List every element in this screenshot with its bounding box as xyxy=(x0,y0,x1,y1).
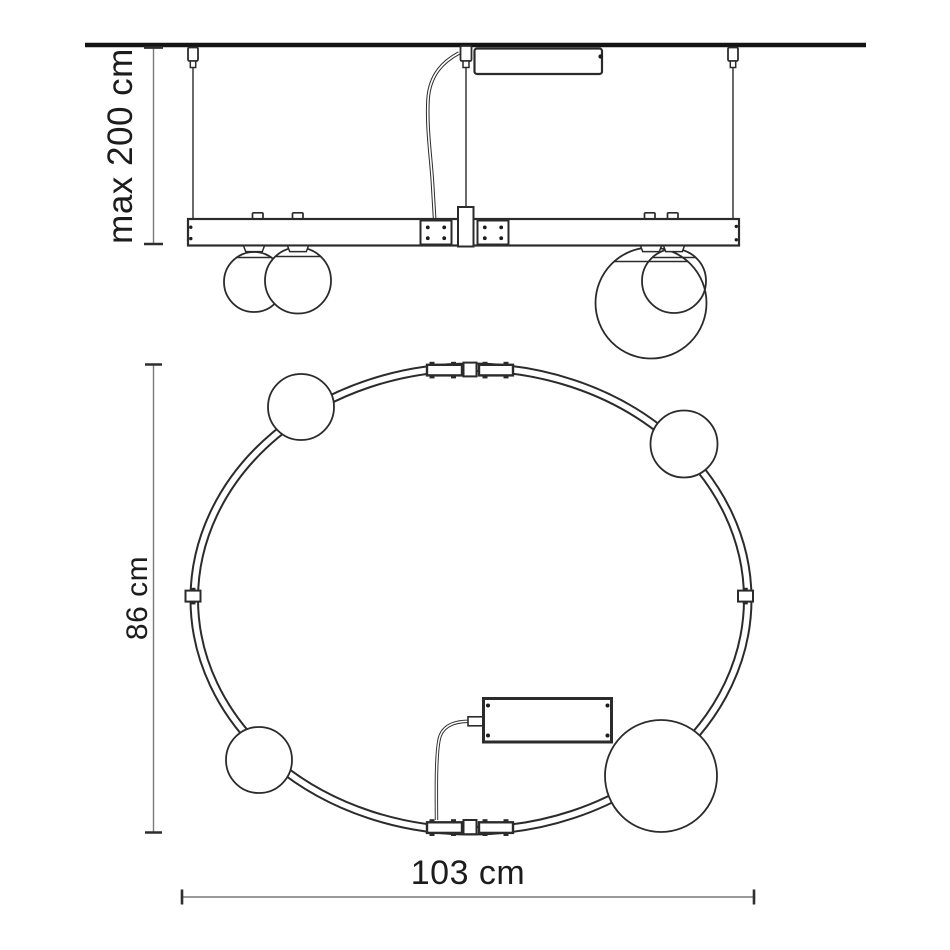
ring-connector-bottom xyxy=(427,819,513,836)
screw-dot xyxy=(606,704,610,708)
screw-dot xyxy=(598,54,602,58)
hanger-block xyxy=(464,820,477,834)
connector-clamp xyxy=(479,365,513,376)
bolt-dot xyxy=(483,226,487,230)
connector-body xyxy=(458,207,474,247)
dimension-label-depth: 86 cm xyxy=(121,556,154,640)
dimension-ring-depth: 86 cm xyxy=(121,365,162,833)
side-view: max 200 cm xyxy=(85,45,866,359)
sphere-top-left xyxy=(268,374,334,440)
hanger-block xyxy=(464,363,477,377)
screw-dot xyxy=(735,238,738,241)
sphere-bottom-left xyxy=(226,727,292,793)
bolt-dot xyxy=(426,226,430,230)
connector-clamp xyxy=(427,822,462,833)
dimension-label-width: 103 cm xyxy=(411,854,526,892)
cable-gripper-right xyxy=(728,48,738,68)
dimension-ring-width: 103 cm xyxy=(182,854,754,905)
cable-gripper-center xyxy=(461,46,472,68)
sphere-bottom-right-large xyxy=(605,720,717,832)
screw-dot xyxy=(735,225,738,228)
bolt-dot xyxy=(499,226,503,230)
cable-gripper-left xyxy=(188,48,198,68)
ring-connector-top xyxy=(427,362,513,379)
glass-spheres-left xyxy=(224,246,331,314)
screw-dot xyxy=(189,226,192,229)
screw-dot xyxy=(486,704,490,708)
lamp-dimension-drawing: max 200 cm xyxy=(0,0,950,950)
cord-stub xyxy=(468,717,484,726)
ring-connector-left xyxy=(186,588,201,605)
sphere-cap xyxy=(244,246,265,252)
glass-sphere xyxy=(265,248,331,314)
bolt-dot xyxy=(483,236,487,240)
connector-clamp xyxy=(427,365,462,376)
bolt-plate-left xyxy=(421,221,452,245)
drawing-svg: max 200 cm xyxy=(0,0,950,950)
driver-box-side xyxy=(475,49,603,75)
sphere-top-right xyxy=(651,411,718,478)
dimension-label-suspension: max 200 cm xyxy=(101,48,140,244)
power-cord-side xyxy=(428,53,459,219)
dimension-suspension-height: max 200 cm xyxy=(101,48,163,244)
sphere-cap xyxy=(641,246,662,252)
bolt-dot xyxy=(442,236,446,240)
power-cord-plan xyxy=(436,721,468,820)
bolt-dot xyxy=(499,236,503,240)
connector-clamp xyxy=(738,591,753,602)
glass-spheres-right xyxy=(596,246,707,359)
bolt-plate-right xyxy=(478,221,509,245)
ring-connector-right xyxy=(738,588,753,605)
driver-box-plan xyxy=(468,699,612,743)
connector-clamp xyxy=(186,591,201,602)
connector-clamp xyxy=(479,822,513,833)
screw-dot xyxy=(189,237,192,240)
bolt-dot xyxy=(426,236,430,240)
driver-body xyxy=(484,699,612,743)
screw-dot xyxy=(486,734,490,738)
bolt-dot xyxy=(442,226,446,230)
screw-dot xyxy=(606,734,610,738)
sphere-cap xyxy=(288,246,309,252)
sphere-cap xyxy=(664,246,685,252)
plan-view: 86 cm 103 cm xyxy=(121,362,754,905)
